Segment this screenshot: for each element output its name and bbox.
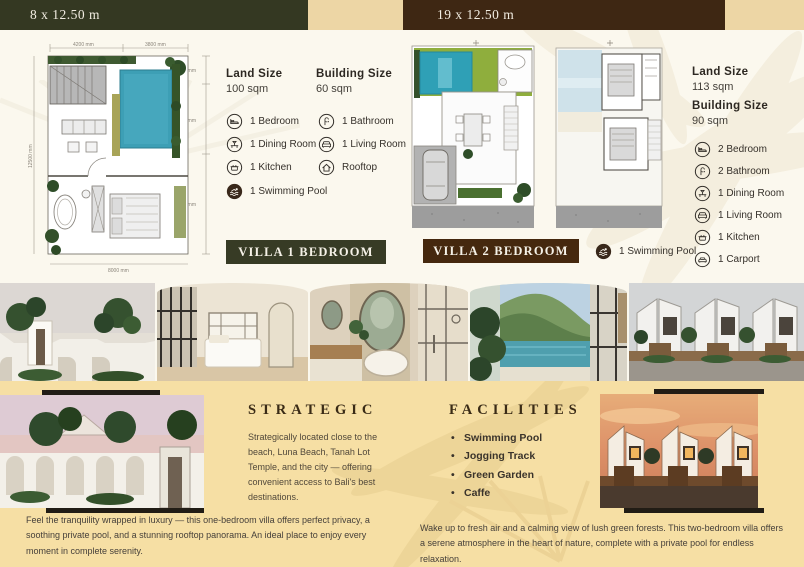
- living-room-icon: [694, 207, 711, 224]
- feature-rooftop: Rooftop: [318, 159, 377, 176]
- land-size-label: Land Size: [226, 68, 311, 80]
- building-size-value: 60 sqm: [316, 83, 406, 95]
- bathroom-icon: [318, 113, 335, 130]
- feature-living-room: 1 Living Room: [318, 136, 406, 153]
- svg-text:4200 mm: 4200 mm: [73, 42, 94, 48]
- photo-villa-row-facade: [629, 283, 804, 381]
- feature-carport: 1 Carport: [694, 251, 760, 268]
- bathroom-icon: [694, 163, 711, 180]
- rooftop-icon: [318, 159, 335, 176]
- kitchen-icon: [694, 229, 711, 246]
- building-size-value: 90 sqm: [692, 115, 792, 127]
- building-size-label: Building Size: [692, 100, 792, 112]
- feature-bedroom: 1 Bedroom: [226, 113, 299, 130]
- villa2-name-plate: VILLA 2 BEDROOM: [423, 239, 579, 263]
- facilities-heading: FACILITIES: [449, 402, 599, 419]
- frame-bar: [624, 508, 764, 513]
- bottom-section: STRATEGIC Strategically located close to…: [0, 381, 804, 567]
- villa1-caption: Feel the tranquility wrapped in luxury —…: [26, 513, 378, 559]
- feature-swimming-pool: 1 Swimming Pool: [226, 183, 327, 200]
- beige-corner-block: [725, 0, 804, 30]
- villa2-ground-floor-plan: [406, 38, 546, 230]
- facility-item: Jogging Track: [451, 447, 599, 465]
- photo-bedroom-interior: [157, 283, 308, 381]
- swimming-pool-icon: [226, 183, 243, 200]
- facility-item: Swimming Pool: [451, 429, 599, 447]
- brochure-page: 8 x 12.50 m 19 x 12.50 m 4200 mm 3800 mm…: [0, 0, 804, 567]
- bed-icon: [226, 113, 243, 130]
- photo-white-arched-villa-sunset: [0, 395, 204, 508]
- feature-bathroom: 2 Bathroom: [694, 163, 770, 180]
- beige-divider-block: [308, 0, 403, 30]
- feature-dining: 1 Dining Room: [694, 185, 784, 202]
- strategic-body: Strategically located close to the beach…: [248, 430, 396, 506]
- villa2-caption: Wake up to fresh air and a calming view …: [420, 521, 786, 567]
- photo-bathroom-oval-mirror: [310, 283, 468, 381]
- villa1-dimensions-ribbon: 8 x 12.50 m: [0, 0, 308, 30]
- villa1-name-plate: VILLA 1 BEDROOM: [226, 240, 386, 264]
- villa1-land-size: Land Size 100 sqm: [226, 68, 311, 95]
- facilities-list: Swimming Pool Jogging Track Green Garden…: [451, 429, 599, 503]
- facility-item: Green Garden: [451, 466, 599, 484]
- villa2-building-size: Building Size 90 sqm: [692, 100, 792, 127]
- strategic-block: STRATEGIC Strategically located close to…: [248, 402, 396, 506]
- land-size-label: Land Size: [692, 66, 792, 78]
- feature-living-room: 1 Living Room: [694, 207, 782, 224]
- kitchen-icon: [226, 159, 243, 176]
- living-room-icon: [318, 136, 335, 153]
- facility-item: Caffe: [451, 484, 599, 502]
- strategic-heading: STRATEGIC: [248, 402, 396, 419]
- land-size-value: 113 sqm: [692, 81, 792, 93]
- dining-icon: [226, 136, 243, 153]
- villa2-upper-floor-plan: [552, 38, 670, 230]
- feature-bathroom: 1 Bathroom: [318, 113, 394, 130]
- feature-dining: 1 Dining Room: [226, 136, 316, 153]
- feature-bedroom: 2 Bedroom: [694, 141, 767, 158]
- land-size-value: 100 sqm: [226, 83, 311, 95]
- carport-icon: [694, 251, 711, 268]
- photo-pool-jungle-view: [470, 283, 627, 381]
- villa1-floor-plan: 4200 mm 3800 mm 12500 mm 1500 mm 4500 mm…: [28, 36, 216, 274]
- swimming-pool-icon: [595, 243, 612, 260]
- villa2-land-size: Land Size 113 sqm: [692, 66, 792, 93]
- villa1-building-size: Building Size 60 sqm: [316, 68, 406, 95]
- building-size-label: Building Size: [316, 68, 406, 80]
- svg-text:8000 mm: 8000 mm: [108, 268, 129, 274]
- dining-icon: [694, 185, 711, 202]
- svg-text:12500 mm: 12500 mm: [28, 144, 34, 168]
- photo-villa-entrance-palms: [0, 283, 155, 381]
- svg-text:3800 mm: 3800 mm: [145, 42, 166, 48]
- feature-kitchen: 1 Kitchen: [694, 229, 760, 246]
- feature-kitchen: 1 Kitchen: [226, 159, 292, 176]
- villa2-feature-swimming-pool: 1 Swimming Pool: [595, 243, 696, 260]
- photo-villa-row-golden-sunset: [600, 394, 758, 508]
- villa2-dimensions-ribbon: 19 x 12.50 m: [403, 0, 725, 30]
- facilities-block: FACILITIES Swimming Pool Jogging Track G…: [449, 402, 599, 503]
- bed-icon: [694, 141, 711, 158]
